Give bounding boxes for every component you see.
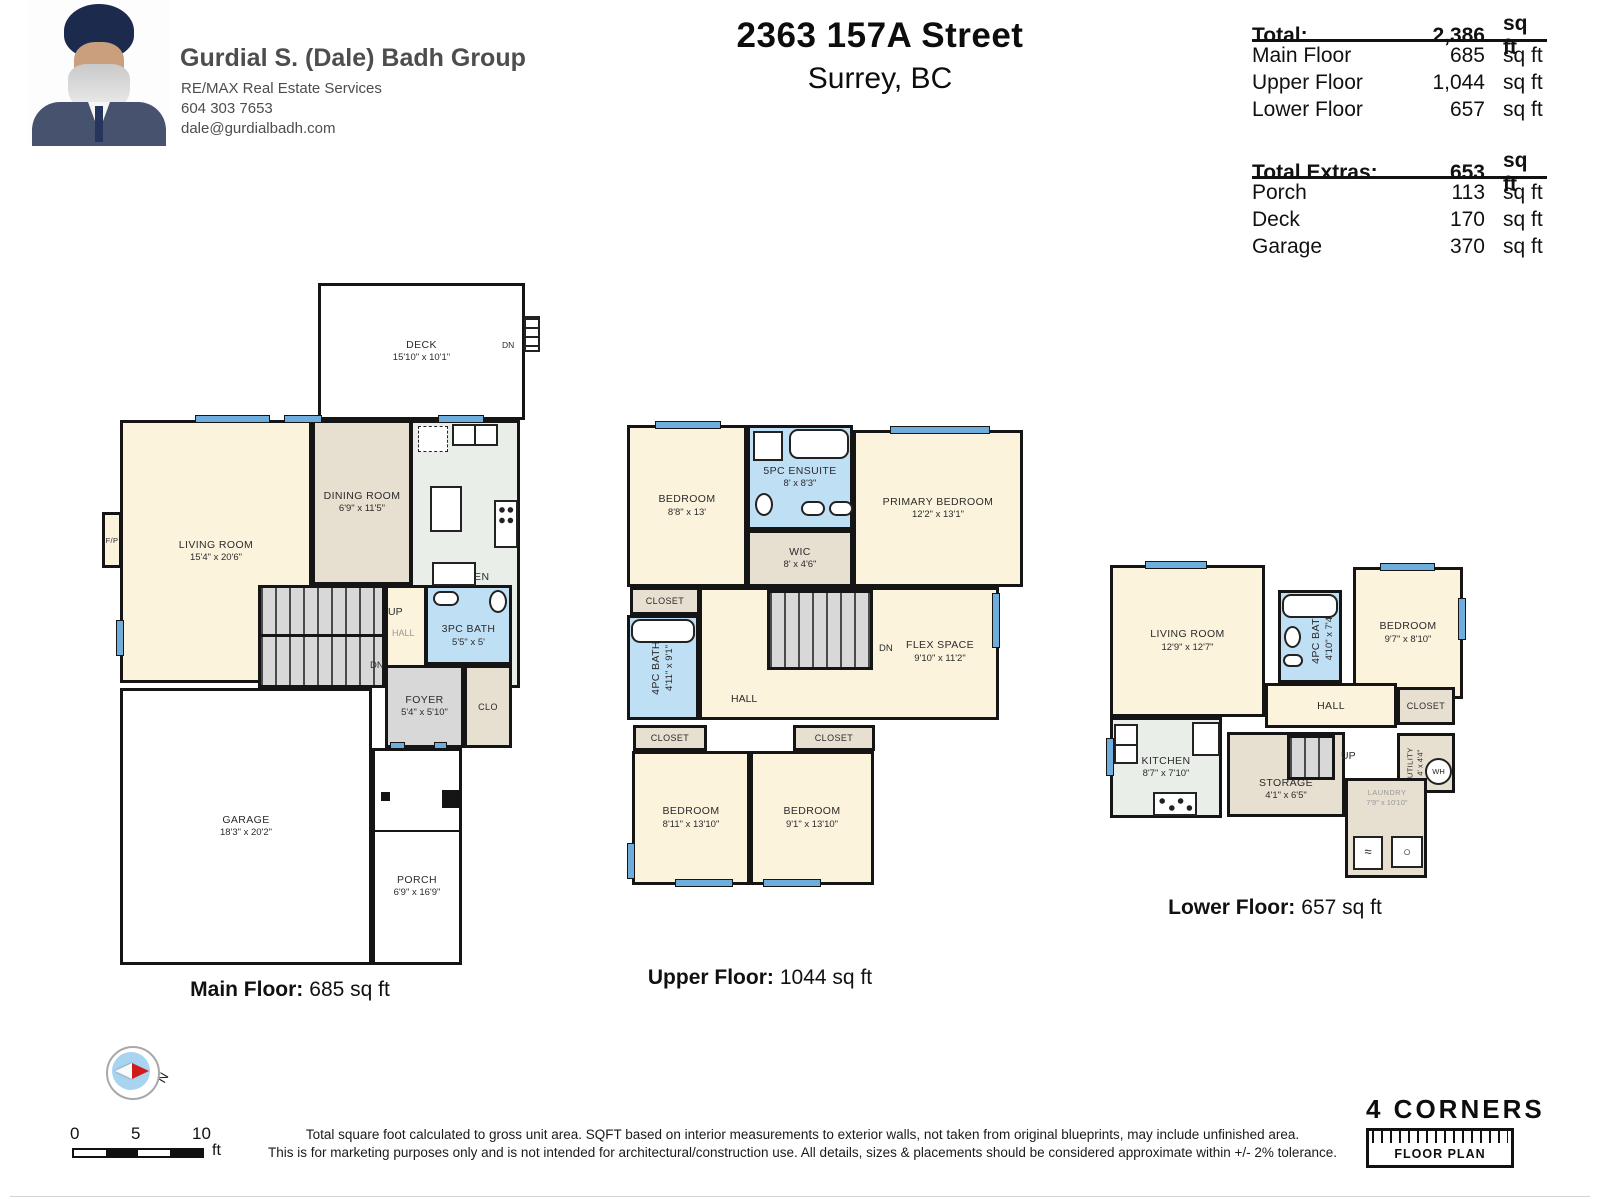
compass-icon [106,1046,160,1100]
row-label: Deck [1252,208,1397,232]
deck-steps-icon [524,316,540,352]
fireplace-nook: F/P [102,512,122,568]
bedroom-2-label: BEDROOM 8'11" x 13'10" [662,805,719,831]
summary-row-upper: Upper Floor 1,044 sq ft [1252,69,1547,96]
room-name: BEDROOM [1379,620,1436,634]
stove-icon [494,500,518,548]
closet-bedroom-3: CLOSET [793,725,875,751]
dryer-icon: ○ [1391,836,1423,868]
living-room-lower: LIVING ROOM 12'9" x 12'7" [1110,565,1265,717]
caption-value: 657 sq ft [1301,896,1382,919]
closet-bedroom-2: CLOSET [633,725,707,751]
property-city: Surrey, BC [630,62,1130,96]
water-heater-label: WH [1427,760,1450,783]
room-name: FOYER [405,694,443,708]
counter-icon [1192,722,1220,756]
bath-4pc-upper-label: 4PC BATH 4'11" x 9'1" [650,641,676,695]
room-dims: 12'9" x 12'7" [1161,642,1213,654]
room-name: DECK [406,339,437,353]
lower-hall: HALL [1265,683,1397,728]
room-name: CLO [478,702,498,712]
garage: GARAGE 18'3" x 20'2" [120,688,372,965]
summary-row-garage: Garage 370 sq ft [1252,233,1547,260]
kitchen-sink-icon [452,424,498,446]
room-dims: 6'9" x 16'9" [394,887,441,899]
row-unit: sq ft [1485,235,1547,259]
porch-divider-line [374,830,460,832]
row-value: 170 [1397,208,1485,232]
bathtub-icon [1282,594,1338,618]
summary-row-deck: Deck 170 sq ft [1252,206,1547,233]
foyer: FOYER 5'4" x 5'10" [385,665,464,748]
bedroom-1: BEDROOM 8'8" x 13' [627,425,747,587]
room-dims: 15'4" x 20'6" [190,552,242,564]
compass-needle-north [132,1063,149,1079]
room-dims: 9'1" x 13'10" [786,819,838,831]
room-name: 3PC BATH [442,623,496,637]
primary-bedroom: PRIMARY BEDROOM 12'2" x 13'1" [853,430,1023,587]
room-dims: 4'11" x 9'1" [664,644,676,690]
sink-icon [829,501,853,516]
four-corners-logo: 4 CORNERS FLOOR PLAN [1366,1094,1514,1168]
disclaimer: Total square foot calculated to gross un… [250,1126,1355,1162]
room-dims: 6'9" x 11'5" [339,503,385,515]
agent-photo [28,0,170,146]
room-name: LAUNDRY [1368,788,1407,798]
scale-bar [72,1148,204,1158]
ruler-ticks-icon [1372,1131,1508,1143]
row-value: 657 [1397,98,1485,122]
room-dims: 4'10" x 7'4" [1324,613,1336,660]
room-name: LIVING ROOM [179,539,253,553]
scale-tick-10: 10 [192,1124,211,1144]
property-address: 2363 157A Street [630,16,1130,56]
upper-stairs [767,590,873,670]
window [116,620,124,656]
caption-label: Main Floor: [190,978,303,1001]
room-name: PORCH [397,874,437,888]
bedroom-lower: BEDROOM 9'7" x 8'10" [1353,567,1463,699]
room-dims: 8' x 4'6" [784,559,817,571]
flex-space-label: FLEX SPACE 9'10" x 11'2" [890,639,990,665]
bottom-divider [10,1196,1590,1197]
room-name: WIC [789,546,811,560]
room-dims: 18'3" x 20'2" [220,827,272,839]
window [195,415,270,423]
summary-row-lower: Lower Floor 657 sq ft [1252,96,1547,123]
room-name: CLOSET [651,733,689,743]
bedroom-3-label: BEDROOM 9'1" x 13'10" [783,805,840,831]
stove-icon [1153,792,1197,816]
sink-icon [433,591,459,606]
floor-plan-flyer: Gurdial S. (Dale) Badh Group RE/MAX Real… [0,0,1600,1200]
tie-graphic [95,106,103,142]
disclaimer-line-1: Total square foot calculated to gross un… [250,1126,1355,1144]
dishwasher-icon [418,426,448,452]
hall-label: HALL [731,693,757,705]
dn-label: DN [370,660,384,671]
porch-post [381,792,390,801]
row-label: Lower Floor [1252,98,1397,122]
disclaimer-line-2: This is for marketing purposes only and … [250,1144,1355,1162]
storage-label: STORAGE 4'1" x 6'5" [1259,777,1313,803]
room-name: KITCHEN [1142,755,1191,769]
walk-in-closet: WIC 8' x 4'6" [747,530,853,587]
porch: PORCH 6'9" x 16'9" [372,748,462,965]
kitchen-lower-label: KITCHEN 8'7" x 7'10" [1142,755,1191,781]
room-name: LIVING ROOM [1150,628,1224,642]
room-dims: 9'10" x 11'2" [914,653,965,665]
row-unit: sq ft [1485,181,1547,205]
up-label: UP [1341,750,1356,762]
hall-label: HALL [1317,700,1345,712]
window [1145,561,1207,569]
summary-gap [1252,123,1547,149]
agent-email: dale@gurdialbadh.com [181,120,336,137]
window [284,415,322,423]
scale-unit-label: ft [212,1142,221,1160]
room-dims: 8'7" x 7'10" [1143,768,1190,780]
bedroom-lower-label: BEDROOM 9'7" x 8'10" [1379,620,1436,646]
lower-stairs [1287,735,1335,780]
scale-tick-5: 5 [131,1124,140,1144]
agent-phone: 604 303 7653 [181,100,273,117]
summary-total-row: Total: 2,386 sq ft [1252,12,1547,42]
room-name: 5PC ENSUITE [763,465,836,479]
summary-row-porch: Porch 113 sq ft [1252,179,1547,206]
scale-tick-0: 0 [70,1124,79,1144]
porch-label: PORCH 6'9" x 16'9" [394,874,441,900]
garage-label: GARAGE 18'3" x 20'2" [220,814,272,840]
room-name: UTILITY [1405,748,1415,779]
caption-label: Lower Floor: [1168,896,1295,919]
room-dims: 4' x 4'4" [1415,750,1425,776]
room-dims: 9'7" x 8'10" [1385,634,1432,646]
fireplace-label: F/P [106,536,119,545]
caption-value: 685 sq ft [309,978,390,1001]
logo-subtitle: FLOOR PLAN [1369,1147,1511,1161]
bedroom-2: BEDROOM 8'11" x 13'10" [632,751,750,885]
kitchen-island-icon [430,486,462,532]
caption-value: 1044 sq ft [780,966,872,989]
room-name: PRIMARY BEDROOM [883,496,994,510]
window [434,742,447,749]
ensuite-label: 5PC ENSUITE 8' x 8'3" [763,465,836,491]
window [675,879,733,887]
window [627,843,635,879]
row-value: 370 [1397,235,1485,259]
room-name: DINING ROOM [324,490,401,504]
closet-lower: CLOSET [1397,687,1455,725]
main-floor-caption: Main Floor:685 sq ft [65,978,515,1002]
summary-extras-total-row: Total Extras: 653 sq ft [1252,149,1547,179]
room-name: CLOSET [646,596,684,606]
room-dims: 8' x 8'3" [784,478,817,490]
row-value: 685 [1397,44,1485,68]
living-room-label: LIVING ROOM 15'4" x 20'6" [179,539,253,565]
window [763,879,821,887]
closet-upper-left: CLOSET [630,587,700,615]
agent-company: RE/MAX Real Estate Services [181,80,382,97]
logo-title: 4 CORNERS [1366,1094,1514,1125]
summary-row-main: Main Floor 685 sq ft [1252,42,1547,69]
main-floor-plan: DECK 15'10" x 10'1" DN LIVING ROOM 15'4"… [100,278,560,978]
room-name: BEDROOM [783,805,840,819]
upper-floor-plan: BEDROOM 8'8" x 13' 5PC ENSUITE 8' x 8'3"… [605,413,1025,973]
row-label: Garage [1252,235,1397,259]
room-dims: 7'9" x 10'10" [1366,798,1407,808]
sink-icon [1283,654,1303,667]
deck-dn-label: DN [502,340,514,350]
window [390,742,405,749]
wic-label: WIC 8' x 4'6" [784,546,817,572]
window [1380,563,1435,571]
foyer-label: FOYER 5'4" x 5'10" [401,694,448,720]
window [1458,598,1466,640]
window [992,593,1000,648]
toilet-icon [755,493,773,516]
sink-icon [801,501,825,516]
window [890,426,990,434]
kitchen-sink-icon [1114,724,1138,764]
closet-main: CLO [464,665,512,748]
window [438,415,484,423]
primary-bedroom-label: PRIMARY BEDROOM 12'2" x 13'1" [883,496,994,522]
fridge-icon [432,562,476,586]
room-name: CLOSET [1407,701,1445,711]
room-dims: 4'1" x 6'5" [1265,790,1307,802]
window [1106,738,1114,776]
caption-label: Upper Floor: [648,966,774,989]
row-unit: sq ft [1485,98,1547,122]
shower-icon [753,431,783,461]
compass-needle-tail [115,1063,132,1079]
lower-floor-caption: Lower Floor:657 sq ft [1085,896,1465,920]
water-heater-icon: WH [1425,758,1452,785]
lower-floor-plan: LIVING ROOM 12'9" x 12'7" 4PC BATH 4'10"… [1095,548,1475,898]
row-unit: sq ft [1485,44,1547,68]
room-name: FLEX SPACE [906,639,974,653]
bath-3pc-label: 3PC BATH 5'5" x 5' [442,623,496,649]
laundry-label: LAUNDRY 7'9" x 10'10" [1347,788,1427,808]
upper-floor-caption: Upper Floor:1044 sq ft [560,966,960,990]
deck-label: DECK 15'10" x 10'1" [393,339,450,365]
logo-ruler-icon: FLOOR PLAN [1366,1128,1514,1168]
room-name: 4PC BATH [650,641,664,695]
toilet-icon [1284,626,1301,648]
room-dims: 8'11" x 13'10" [663,819,720,831]
bedroom-1-label: BEDROOM 8'8" x 13' [658,493,715,519]
dining-room-label: DINING ROOM 6'9" x 11'5" [324,490,401,516]
row-unit: sq ft [1485,71,1547,95]
row-label: Main Floor [1252,44,1397,68]
room-name: CLOSET [815,733,853,743]
row-value: 1,044 [1397,71,1485,95]
row-unit: sq ft [1485,208,1547,232]
room-dims: 5'4" x 5'10" [401,707,448,719]
room-dims: 12'2" x 13'1" [912,509,964,521]
bedroom-3: BEDROOM 9'1" x 13'10" [750,751,874,885]
porch-post [442,790,459,808]
washer-icon: ≈ [1353,836,1383,870]
dining-room: DINING ROOM 6'9" x 11'5" [312,420,412,585]
utility-label: UTILITY 4' x 4'4" [1405,748,1425,779]
room-name: BEDROOM [658,493,715,507]
room-name: BEDROOM [662,805,719,819]
room-dims: 8'8" x 13' [668,507,706,519]
deck: DECK 15'10" x 10'1" [318,283,525,420]
up-label: UP [388,606,403,618]
room-dims: 5'5" x 5' [452,637,485,649]
toilet-icon [489,590,507,613]
row-label: Upper Floor [1252,71,1397,95]
room-dims: 15'10" x 10'1" [393,352,450,364]
row-value: 113 [1397,181,1485,205]
sqft-summary-table: Total: 2,386 sq ft Main Floor 685 sq ft … [1252,12,1547,260]
bathtub-icon [631,619,695,643]
bathtub-icon [789,429,849,459]
living-room-lower-label: LIVING ROOM 12'9" x 12'7" [1150,628,1224,654]
room-name: GARAGE [222,814,269,828]
window [655,421,721,429]
agent-name: Gurdial S. (Dale) Badh Group [180,44,526,73]
stairs-landing-line [261,634,382,637]
hall-label: HALL [392,628,415,638]
row-label: Porch [1252,181,1397,205]
